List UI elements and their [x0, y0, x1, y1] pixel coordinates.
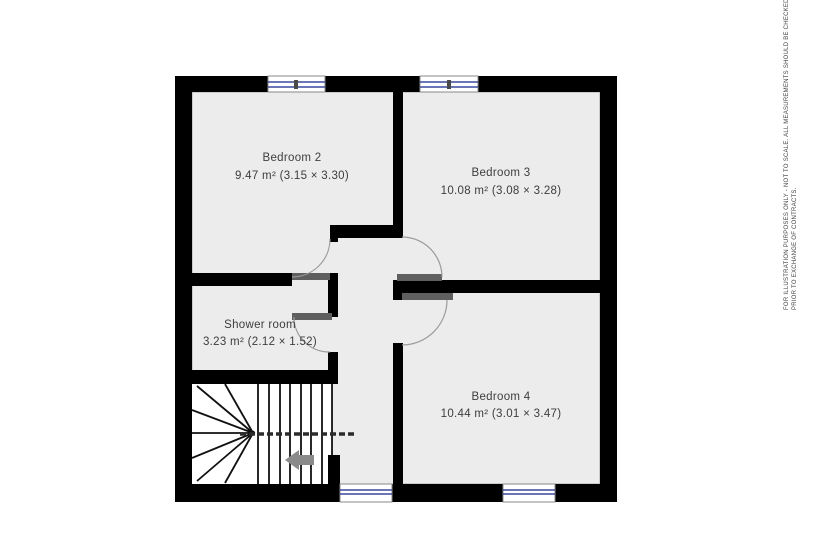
- wall-top-a: [175, 76, 268, 92]
- door-shower-room: [292, 313, 332, 320]
- floor-plan: Bedroom 2 9.47 m² (3.15 × 3.30) Bedroom …: [0, 0, 820, 547]
- disclaimer: FOR ILLUSTRATION PURPOSES ONLY - NOT TO …: [784, 0, 798, 310]
- wall-bed2-landing-cap: [330, 225, 338, 242]
- wall-shower-top: [175, 273, 292, 286]
- room-dims-bedroom2: 9.47 m² (3.15 × 3.30): [235, 170, 349, 182]
- room-dims-bedroom4: 10.44 m² (3.01 × 3.47): [441, 408, 562, 420]
- door-bedroom3: [397, 274, 442, 281]
- floorplan-page: Bedroom 2 9.47 m² (3.15 × 3.30) Bedroom …: [0, 0, 820, 547]
- wall-landing-east-lower: [393, 343, 403, 484]
- wall-top-b: [325, 76, 420, 92]
- wall-bed3-bed4: [393, 280, 600, 293]
- room-label-bedroom3: Bedroom 3: [472, 167, 531, 179]
- window-mullion: [294, 80, 298, 89]
- room-dims-shower-room: 3.23 m² (2.12 × 1.52): [203, 336, 317, 348]
- window-frame: [340, 484, 392, 502]
- window-mullion: [447, 80, 451, 89]
- wall-bed2-landing: [330, 225, 403, 238]
- window-landing: [340, 484, 392, 502]
- window-bedroom2: [268, 76, 325, 92]
- wall-left: [175, 76, 192, 502]
- wall-stairs-bottom: [328, 455, 340, 484]
- wall-bed2-bed3-divider: [393, 92, 403, 238]
- room-dims-bedroom3: 10.08 m² (3.08 × 3.28): [441, 185, 562, 197]
- disclaimer-line2: PRIOR TO EXCHANGE OF CONTRACTS.: [792, 187, 798, 310]
- window-bedroom4: [503, 484, 555, 502]
- wall-shower-south: [192, 370, 338, 384]
- window-frame: [503, 484, 555, 502]
- wall-right: [600, 76, 617, 502]
- room-label-bedroom4: Bedroom 4: [472, 391, 531, 403]
- wall-bottom-c: [555, 484, 617, 502]
- wall-landing-east-upper: [393, 280, 403, 300]
- wall-top-c: [478, 76, 617, 92]
- window-bedroom3: [420, 76, 478, 92]
- wall-bottom-b: [392, 484, 503, 502]
- door-bedroom4: [402, 293, 453, 300]
- disclaimer-line1: FOR ILLUSTRATION PURPOSES ONLY - NOT TO …: [784, 0, 790, 310]
- room-label-bedroom2: Bedroom 2: [263, 152, 322, 164]
- room-label-shower-room: Shower room: [224, 319, 296, 331]
- wall-bottom-a: [175, 484, 340, 502]
